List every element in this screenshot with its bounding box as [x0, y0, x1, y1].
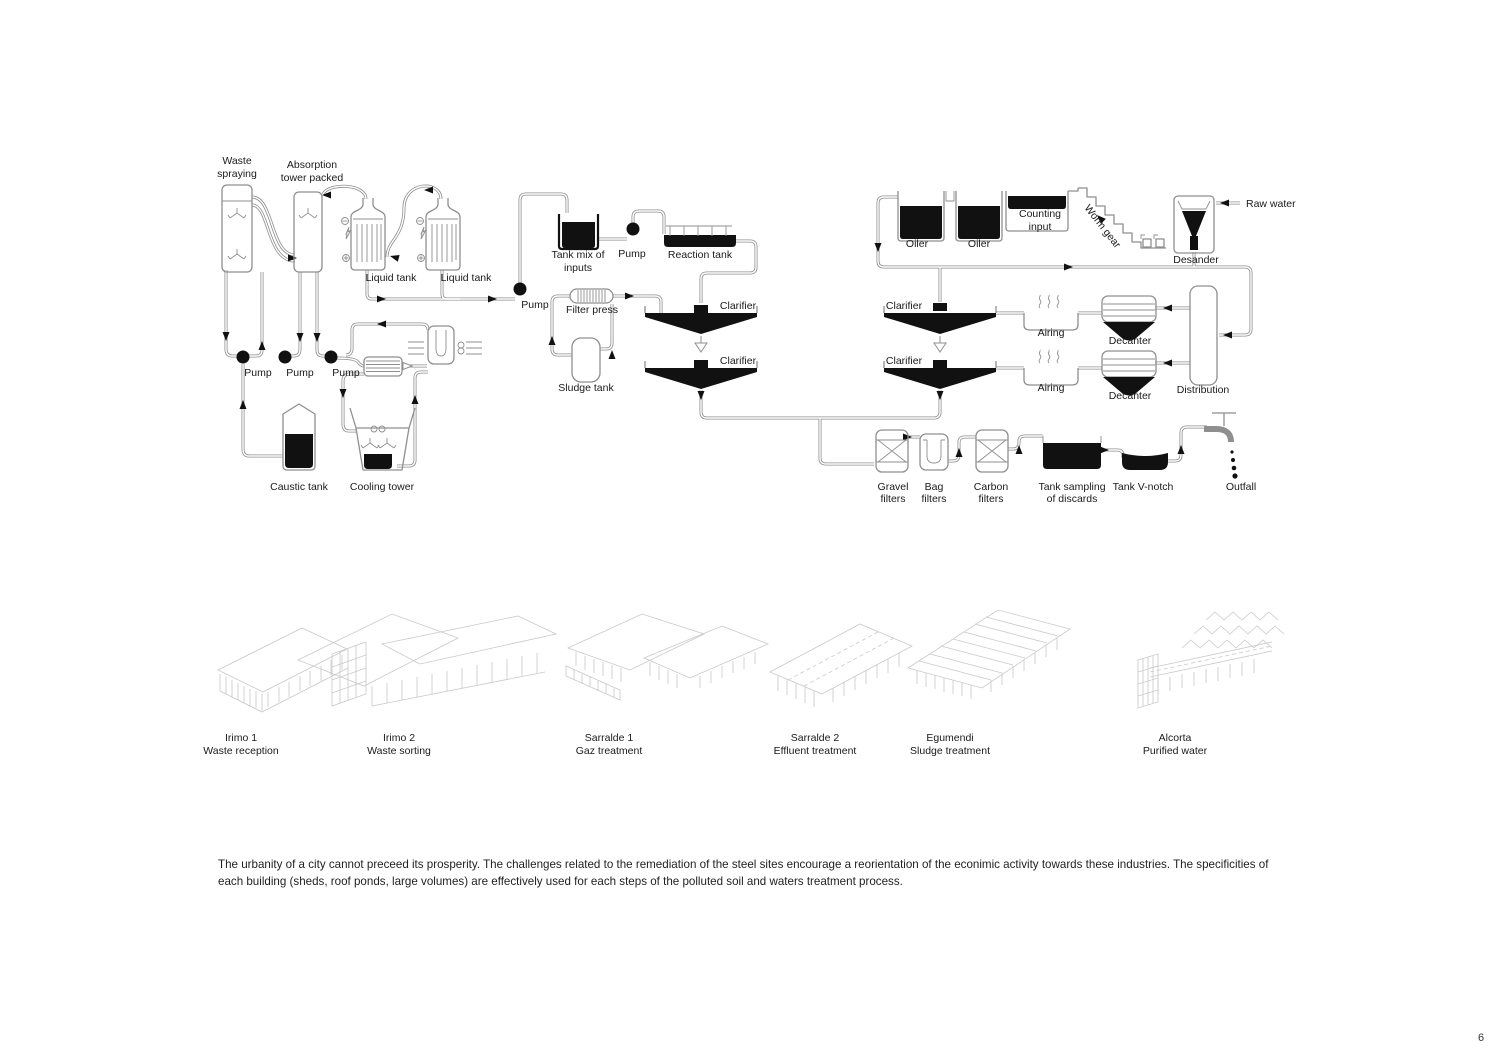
label-bag-filters: Bag: [925, 481, 944, 493]
label-clarifier-1: Clarifier: [720, 300, 757, 312]
decanter-2: [1102, 351, 1156, 396]
liquid-tank-1: [342, 198, 386, 270]
label-pump-5: Pump: [618, 248, 646, 260]
svg-text:input: input: [1029, 221, 1052, 233]
pump-icon: [514, 283, 527, 296]
process-flow-diagram: Waste spraying Absorption tower packed L…: [0, 0, 1500, 1061]
electric-icon: [421, 227, 426, 239]
building-sketch-egumendi: [908, 610, 1070, 699]
label-oiler-1: Oiler: [906, 238, 929, 250]
carbon-filter: [976, 430, 1008, 472]
building-name-sarralde-2: Sarralde 2: [791, 732, 840, 744]
label-filter-press: Filter press: [566, 304, 618, 316]
label-clarifier-4: Clarifier: [886, 355, 923, 367]
pump-icon: [325, 351, 338, 364]
svg-text:filters: filters: [978, 493, 1003, 505]
label-oiler-2: Oiler: [968, 238, 991, 250]
label-counting-input: Counting: [1019, 208, 1061, 220]
label-waste-spraying: Waste: [222, 155, 252, 167]
absorption-tower: [294, 192, 322, 272]
building-name-sarralde-1: Sarralde 1: [585, 732, 634, 744]
oiler-1: [898, 191, 944, 241]
label-decanter-2: Decanter: [1109, 390, 1152, 402]
svg-text:spraying: spraying: [217, 168, 257, 180]
label-outfall: Outfall: [1226, 481, 1256, 493]
svg-text:filters: filters: [921, 493, 946, 505]
building-function-egumendi: Sludge treatment: [910, 745, 990, 757]
label-desander: Desander: [1173, 254, 1219, 266]
svg-text:of discards: of discards: [1047, 493, 1098, 505]
building-function-irimo-2: Waste sorting: [367, 745, 431, 757]
tank-mix-of-inputs: [559, 214, 598, 249]
building-function-alcorta: Purified water: [1143, 745, 1208, 757]
page-number: 6: [1478, 1032, 1484, 1044]
spray-nozzle-icon: [299, 208, 317, 218]
oiler-2: [946, 191, 1002, 241]
pump-icon: [279, 351, 292, 364]
heat-exchanger: [364, 357, 402, 376]
label-airing-1: Airing: [1038, 327, 1065, 339]
label-worm-gear: Worm gear: [1082, 202, 1124, 251]
building-name-irimo-1: Irimo 1: [225, 732, 257, 744]
label-pump-2: Pump: [286, 367, 314, 379]
caption-paragraph: The urbanity of a city cannot preceed it…: [218, 856, 1284, 891]
pump-icon: [627, 223, 640, 236]
label-caustic-tank: Caustic tank: [270, 481, 329, 493]
spray-nozzle-icon: [228, 249, 246, 259]
waste-spraying-tower: [222, 185, 252, 272]
svg-text:filters: filters: [880, 493, 905, 505]
svg-text:inputs: inputs: [564, 262, 592, 274]
label-sludge-tank: Sludge tank: [558, 382, 614, 394]
label-decanter-1: Decanter: [1109, 335, 1152, 347]
label-reaction-tank: Reaction tank: [668, 249, 733, 261]
liquid-tank-2: [417, 198, 461, 270]
bag-filter: [920, 434, 948, 470]
decanter-1: [1102, 296, 1156, 341]
building-function-irimo-1: Waste reception: [203, 745, 279, 757]
label-cooling-tower: Cooling tower: [350, 481, 415, 493]
spray-nozzle-icon: [228, 208, 246, 218]
air-cooler: [408, 326, 482, 364]
label-pump-3: Pump: [332, 367, 360, 379]
pump-icon: [237, 351, 250, 364]
filter-press: [570, 289, 613, 303]
desander: [1174, 196, 1214, 253]
outfall-faucet: [1204, 413, 1238, 479]
label-distribution: Distribution: [1177, 384, 1230, 396]
label-absorption-tower: Absorption: [287, 159, 337, 171]
tank-sampling-of-discards: [1043, 436, 1101, 469]
building-function-sarralde-1: Gaz treatment: [576, 745, 643, 757]
label-pump-1: Pump: [244, 367, 272, 379]
building-name-egumendi: Egumendi: [926, 732, 973, 744]
fan-icon: [466, 342, 482, 354]
steam-icon: [1039, 295, 1041, 308]
building-sketch-sarralde-1: [566, 614, 768, 700]
label-gravel-filters: Gravel: [878, 481, 909, 493]
label-liquid-tank-1: Liquid tank: [366, 272, 418, 284]
building-labels: Irimo 1 Waste reception Irimo 2 Waste so…: [203, 732, 1207, 757]
reaction-tank: [664, 226, 736, 247]
airflow-icon: [408, 342, 424, 354]
tank-v-notch: [1122, 453, 1168, 470]
document-page: Waste spraying Absorption tower packed L…: [0, 0, 1500, 1061]
cooling-tower: [350, 408, 415, 470]
steam-icon: [1039, 350, 1041, 363]
label-tank-mix: Tank mix of: [551, 249, 604, 261]
label-clarifier-2: Clarifier: [720, 355, 757, 367]
label-carbon-filters: Carbon: [974, 481, 1009, 493]
svg-text:tower packed: tower packed: [281, 172, 344, 184]
airing-basin-1: [1024, 295, 1078, 330]
caustic-tank: [283, 404, 315, 470]
label-tank-sampling: Tank sampling: [1038, 481, 1105, 493]
label-pump-4: Pump: [521, 299, 549, 311]
airing-basin-2: [1024, 350, 1078, 385]
distribution-unit: [1190, 286, 1217, 385]
building-sketch-alcorta: [1138, 612, 1284, 708]
label-raw-water: Raw water: [1246, 198, 1296, 210]
label-tank-v-notch: Tank V-notch: [1113, 481, 1174, 493]
electric-icon: [346, 227, 351, 239]
label-clarifier-3: Clarifier: [886, 300, 923, 312]
spray-nozzle-icon: [378, 438, 396, 448]
building-name-alcorta: Alcorta: [1159, 732, 1192, 744]
label-airing-2: Airing: [1038, 382, 1065, 394]
spray-nozzle-icon: [361, 438, 379, 448]
sludge-tank: [572, 338, 600, 382]
building-sketch-irimo-1: [218, 628, 348, 712]
faucet-handle-icon: [1212, 413, 1236, 426]
building-sketch-sarralde-2: [770, 624, 912, 707]
building-sketch-irimo-2: [298, 614, 556, 706]
building-name-irimo-2: Irimo 2: [383, 732, 415, 744]
building-function-sarralde-2: Effluent treatment: [774, 745, 857, 757]
label-liquid-tank-2: Liquid tank: [441, 272, 493, 284]
